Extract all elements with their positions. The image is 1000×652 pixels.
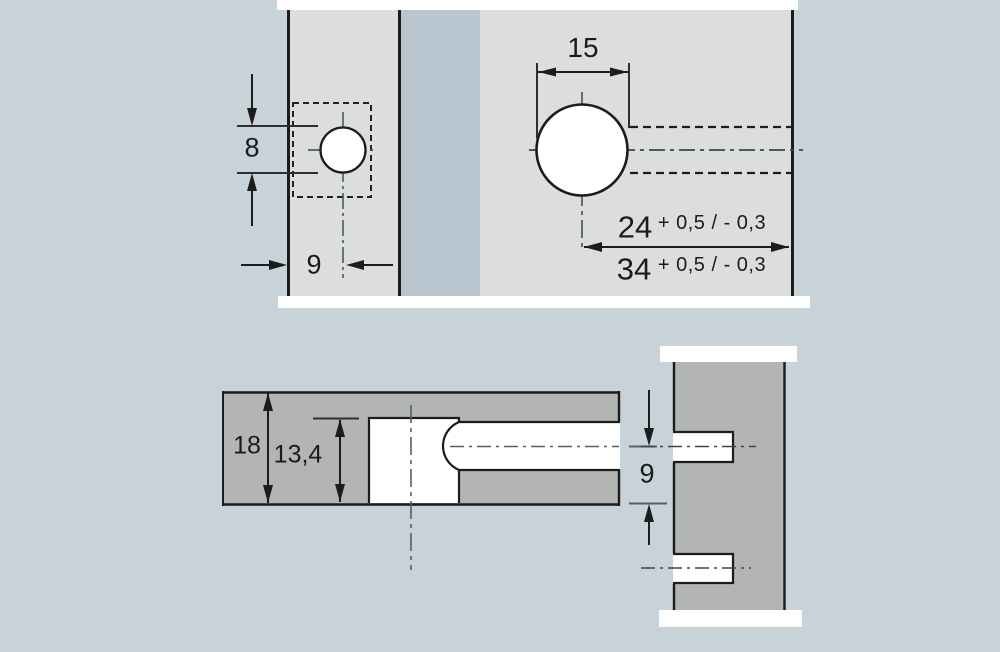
side-panel-bottom-white-band [659,610,802,627]
gap-band [401,10,480,297]
hole-8mm [321,128,366,173]
dim-label-8: 8 [244,135,259,162]
dim-label-18: 18 [233,434,261,459]
dim-label-15: 15 [567,34,598,62]
dim-label-13-4: 13,4 [274,443,323,468]
dim-label-34: 34 [617,254,651,285]
dim-label-24: 24 [618,212,652,243]
dim-label-24-tolerance: + 0,5 / - 0,3 [658,213,766,233]
drawing-graphics [0,0,1000,652]
side-panel-top-white-band [660,346,797,362]
technical-drawing-canvas: 8 9 15 24 + 0,5 / - 0,3 34 + 0,5 / - 0,3… [0,0,1000,652]
dim-label-9-side: 9 [639,461,654,488]
dim9-side-arrowhead-bottom [644,504,654,522]
dim-label-34-tolerance: + 0,5 / - 0,3 [658,255,766,275]
dim9-edge-arrowhead-left [269,260,287,270]
hole-15mm [537,105,628,196]
bottom-white-band [278,296,810,308]
dim8-arrowhead-top [247,108,257,126]
cam-housing-cavity [369,418,459,503]
dim9-side-arrowhead-top [644,428,654,446]
dim-label-9-edge: 9 [306,252,321,279]
top-white-band [277,0,798,10]
dim8-arrowhead-bottom [247,173,257,191]
